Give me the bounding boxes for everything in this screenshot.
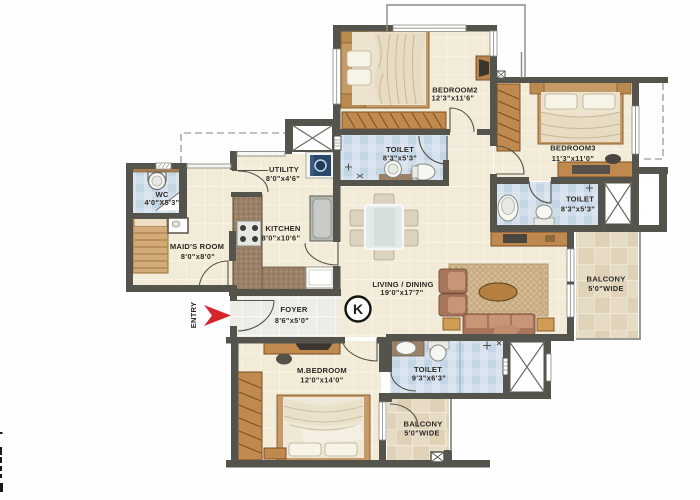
svg-text:8'0"x8'0": 8'0"x8'0": [181, 252, 215, 261]
svg-text:9'3"x6'3": 9'3"x6'3": [412, 374, 446, 383]
svg-text:KITCHEN: KITCHEN: [265, 224, 300, 233]
svg-text:K: K: [353, 301, 363, 317]
svg-text:TOILET: TOILET: [566, 195, 594, 204]
svg-text:12'0"x14'0": 12'0"x14'0": [300, 376, 343, 385]
svg-text:UTILITY: UTILITY: [269, 165, 299, 174]
svg-text:5'0"WIDE: 5'0"WIDE: [404, 429, 440, 438]
svg-text:8'6"x5'0": 8'6"x5'0": [275, 316, 309, 325]
svg-text:MAID'S ROOM: MAID'S ROOM: [170, 242, 224, 251]
svg-text:8'0"x4'6": 8'0"x4'6": [266, 174, 300, 183]
svg-text:BEDROOM3: BEDROOM3: [550, 144, 595, 153]
svg-text:BALCONY: BALCONY: [404, 420, 443, 429]
svg-text:8'3"x5'3": 8'3"x5'3": [383, 154, 417, 163]
svg-text:19'0"x17'7": 19'0"x17'7": [380, 288, 423, 297]
svg-text:8'0"x10'6": 8'0"x10'6": [262, 234, 301, 243]
svg-text:11'3"x11'0": 11'3"x11'0": [552, 154, 594, 163]
svg-text:5'0"WIDE: 5'0"WIDE: [588, 284, 624, 293]
svg-text:BALCONY: BALCONY: [587, 275, 626, 284]
svg-text:ENTRY: ENTRY: [189, 302, 198, 328]
svg-text:8'3"x5'3": 8'3"x5'3": [561, 205, 595, 214]
svg-text:12'3"x11'6": 12'3"x11'6": [432, 94, 475, 103]
svg-text:4'0"X5'3": 4'0"X5'3": [144, 198, 179, 207]
svg-text:FOYER: FOYER: [280, 305, 307, 314]
svg-text:M.BEDROOM: M.BEDROOM: [297, 366, 347, 375]
